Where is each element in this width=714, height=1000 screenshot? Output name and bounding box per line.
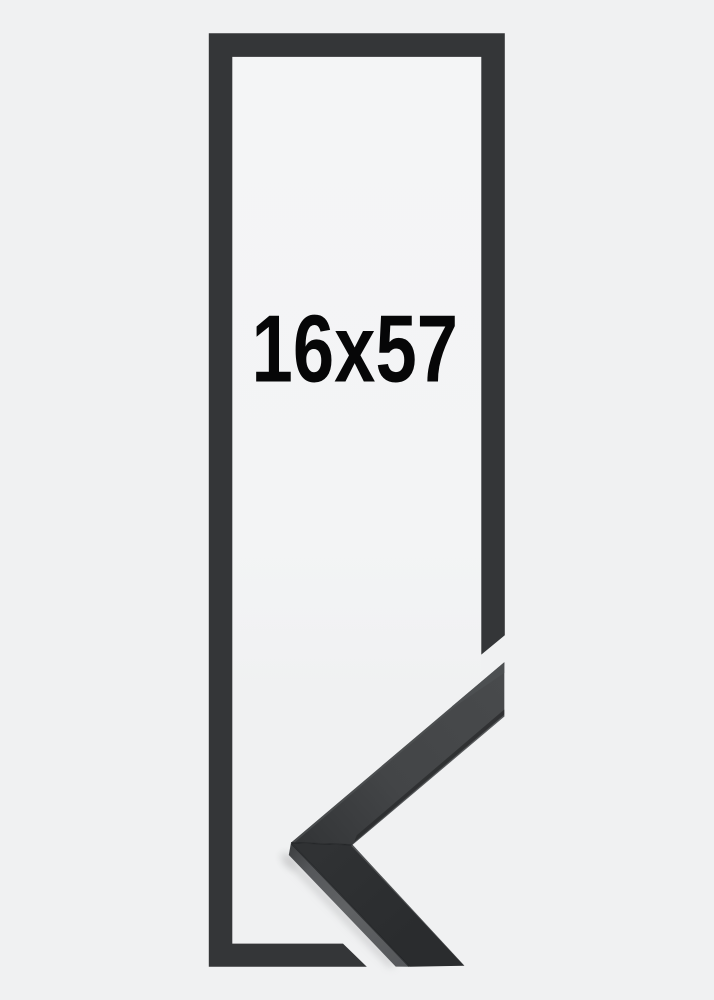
- svg-text:16x57: 16x57: [252, 296, 459, 402]
